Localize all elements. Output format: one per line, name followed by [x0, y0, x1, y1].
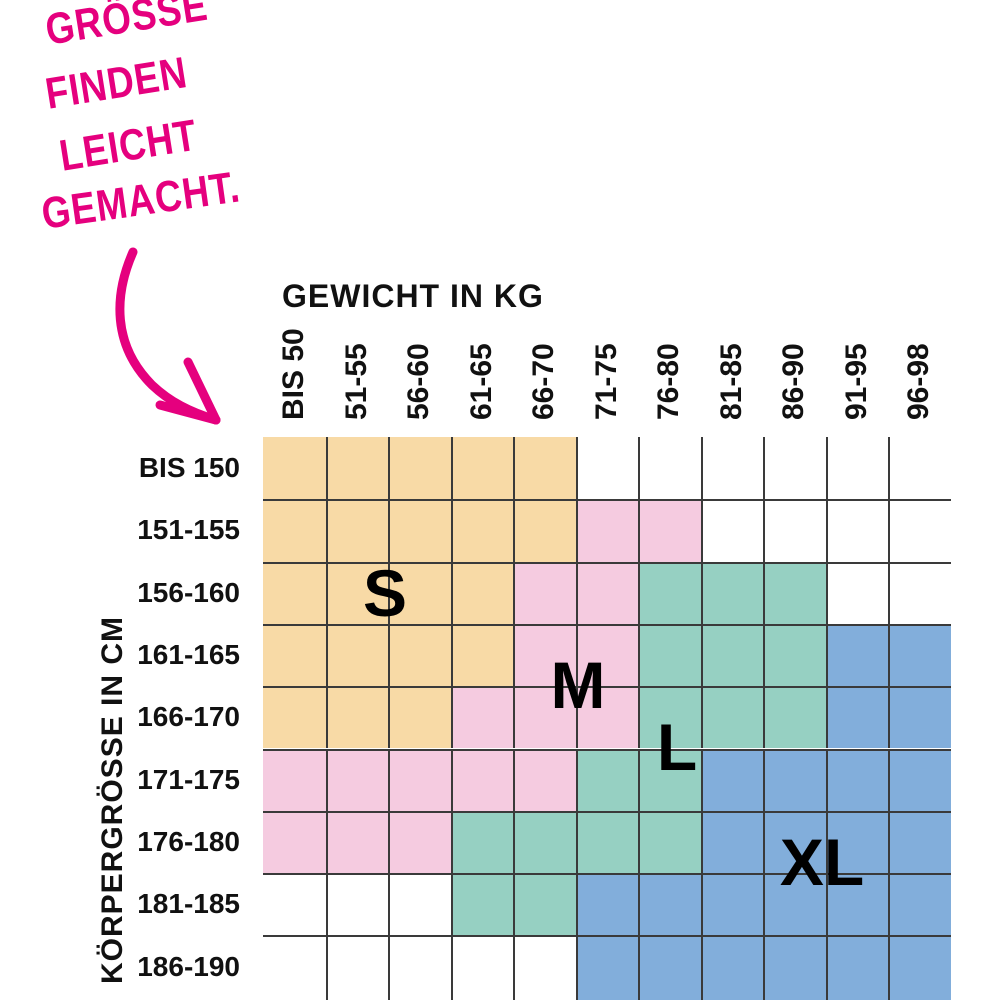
- grid-cell: [451, 749, 514, 811]
- grid-cell: [888, 562, 951, 624]
- grid-cell: [513, 935, 576, 1000]
- grid-cell: [763, 749, 826, 811]
- size-grid: [263, 437, 951, 1000]
- headline-line-1: GRÖSSE: [42, 0, 211, 56]
- grid-cell: [763, 437, 826, 499]
- grid-cell: [451, 499, 514, 561]
- col-label: 61-65: [466, 343, 498, 420]
- grid-cell: [576, 811, 639, 873]
- grid-cell: [326, 811, 389, 873]
- grid-cell: [326, 873, 389, 935]
- grid-cell: [388, 873, 451, 935]
- grid-cell: [388, 499, 451, 561]
- grid-cell: [576, 437, 639, 499]
- row-label: 161-165: [60, 639, 240, 671]
- col-label: 71-75: [591, 343, 623, 420]
- row-label: 151-155: [60, 514, 240, 546]
- grid-cell: [513, 499, 576, 561]
- grid-cell: [888, 624, 951, 686]
- grid-cell: [826, 624, 889, 686]
- grid-cell: [451, 811, 514, 873]
- grid-cell: [388, 437, 451, 499]
- grid-cell: [888, 935, 951, 1000]
- col-label: 91-95: [841, 343, 873, 420]
- size-letter-xl: XL: [780, 824, 864, 900]
- grid-cell: [263, 811, 326, 873]
- grid-cell: [451, 935, 514, 1000]
- grid-cell: [388, 749, 451, 811]
- row-label: 181-185: [60, 888, 240, 920]
- grid-cell: [888, 686, 951, 748]
- grid-cell: [513, 749, 576, 811]
- grid-cell: [701, 686, 764, 748]
- size-letter-s: S: [363, 555, 407, 631]
- grid-cell: [763, 686, 826, 748]
- grid-cell: [263, 624, 326, 686]
- grid-cell: [701, 437, 764, 499]
- grid-cell: [326, 749, 389, 811]
- grid-cell: [701, 873, 764, 935]
- grid-cell: [763, 624, 826, 686]
- grid-cell: [826, 935, 889, 1000]
- col-label: 56-60: [403, 343, 435, 420]
- grid-cell: [388, 624, 451, 686]
- row-label: BIS 150: [60, 452, 240, 484]
- grid-cell: [263, 935, 326, 1000]
- col-label: 51-55: [341, 343, 373, 420]
- grid-cell: [638, 437, 701, 499]
- weight-axis-title: GEWICHT IN KG: [282, 278, 544, 315]
- grid-cell: [701, 935, 764, 1000]
- col-label: 86-90: [778, 343, 810, 420]
- grid-cell: [826, 686, 889, 748]
- col-label: 66-70: [528, 343, 560, 420]
- grid-cell: [513, 811, 576, 873]
- size-letter-l: L: [657, 709, 697, 785]
- grid-cell: [513, 873, 576, 935]
- grid-cell: [763, 562, 826, 624]
- grid-cell: [701, 749, 764, 811]
- grid-cell: [451, 437, 514, 499]
- grid-cell: [638, 935, 701, 1000]
- grid-cell: [888, 437, 951, 499]
- grid-cell: [451, 686, 514, 748]
- row-label: 186-190: [60, 951, 240, 983]
- row-label: 176-180: [60, 826, 240, 858]
- col-label: 81-85: [716, 343, 748, 420]
- grid-cell: [888, 749, 951, 811]
- grid-cell: [826, 499, 889, 561]
- grid-cell: [826, 749, 889, 811]
- grid-cell: [513, 562, 576, 624]
- grid-cell: [451, 562, 514, 624]
- grid-cell: [451, 624, 514, 686]
- height-axis-title: KÖRPERGRÖSSE IN CM: [96, 616, 130, 984]
- row-label: 166-170: [60, 701, 240, 733]
- grid-cell: [326, 499, 389, 561]
- grid-cell: [826, 437, 889, 499]
- curved-arrow-icon: [90, 240, 250, 440]
- grid-cell: [576, 562, 639, 624]
- grid-cell: [826, 562, 889, 624]
- grid-cell: [388, 686, 451, 748]
- grid-cell: [701, 624, 764, 686]
- grid-cell: [888, 499, 951, 561]
- grid-cell: [326, 437, 389, 499]
- grid-cell: [263, 749, 326, 811]
- grid-cell: [263, 873, 326, 935]
- grid-cell: [388, 811, 451, 873]
- grid-cell: [638, 811, 701, 873]
- row-label: 171-175: [60, 764, 240, 796]
- grid-cell: [451, 873, 514, 935]
- grid-cell: [263, 499, 326, 561]
- grid-cell: [326, 686, 389, 748]
- size-letter-m: M: [551, 647, 606, 723]
- grid-cell: [576, 749, 639, 811]
- col-label: 76-80: [653, 343, 685, 420]
- grid-cell: [638, 562, 701, 624]
- grid-cell: [576, 499, 639, 561]
- grid-cell: [326, 624, 389, 686]
- col-label: 96-98: [903, 343, 935, 420]
- grid-cell: [576, 935, 639, 1000]
- grid-cell: [888, 811, 951, 873]
- grid-cell: [763, 935, 826, 1000]
- grid-cell: [638, 873, 701, 935]
- grid-cell: [263, 686, 326, 748]
- grid-cell: [513, 437, 576, 499]
- grid-cell: [888, 873, 951, 935]
- grid-cell: [638, 624, 701, 686]
- grid-cell: [763, 499, 826, 561]
- grid-cell: [576, 873, 639, 935]
- grid-cell: [701, 562, 764, 624]
- grid-cell: [263, 562, 326, 624]
- grid-cell: [701, 499, 764, 561]
- col-label: BIS 50: [278, 328, 310, 420]
- grid-cell: [326, 935, 389, 1000]
- grid-cell: [388, 935, 451, 1000]
- row-label: 156-160: [60, 577, 240, 609]
- grid-cell: [701, 811, 764, 873]
- grid-cell: [638, 499, 701, 561]
- headline-line-2: FINDEN: [42, 48, 191, 120]
- grid-cell: [263, 437, 326, 499]
